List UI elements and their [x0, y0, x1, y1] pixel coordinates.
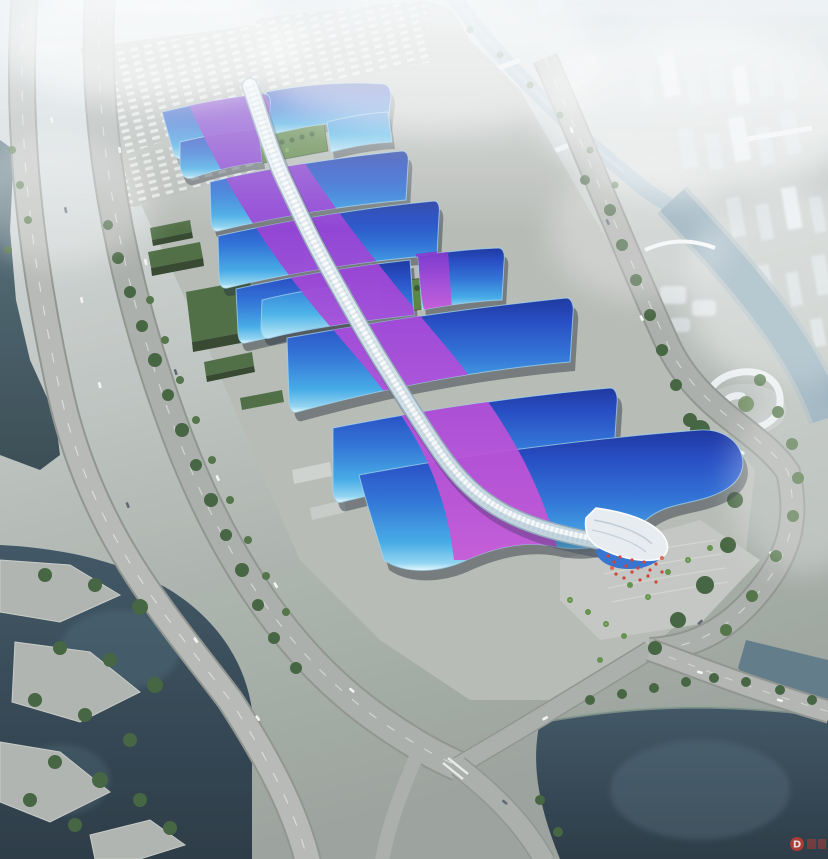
- haze-overlay: [0, 0, 828, 859]
- rendering-canvas: D: [0, 0, 828, 859]
- watermark-letter: D: [793, 840, 801, 851]
- watermark: D: [790, 837, 826, 851]
- aerial-rendering-exhibition-center: D: [0, 0, 828, 859]
